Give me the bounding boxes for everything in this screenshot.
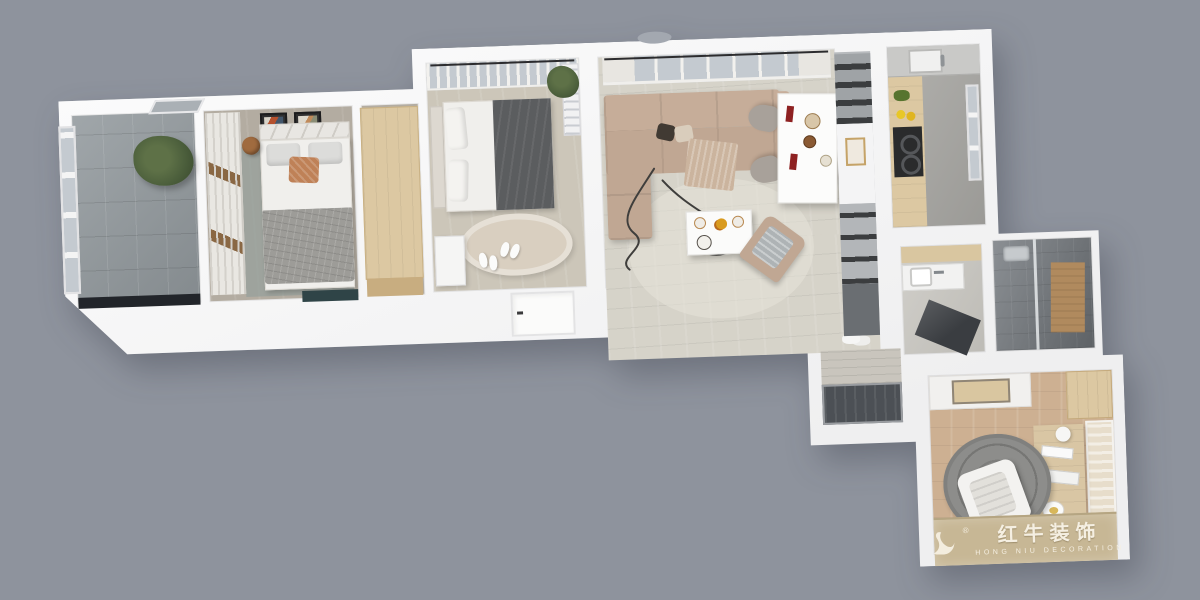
- entry-step: [821, 348, 902, 385]
- pillow: [444, 107, 468, 151]
- watermark-banner: ® 红牛装饰 HONG NIU DECORATION: [933, 512, 1118, 566]
- small-framed-picture: [845, 137, 866, 166]
- vanity-overhead-cabinet: [901, 244, 982, 263]
- lower-cabinet: [842, 283, 880, 336]
- kitchen-faucet: [940, 55, 944, 67]
- dark-blanket: [493, 98, 555, 210]
- sideboard-cabinet: [839, 203, 878, 284]
- gas-stove: [893, 126, 924, 177]
- brand-name-chinese: 红牛装饰: [997, 522, 1102, 546]
- shower-fixture: [1003, 246, 1030, 262]
- watermark-text: 红牛装饰 HONG NIU DECORATION: [974, 522, 1125, 557]
- entry-door: [822, 382, 903, 425]
- wash-basin: [910, 267, 933, 287]
- plan-shadow: ® 红牛装饰 HONG NIU DECORATION: [0, 0, 1200, 600]
- registered-trademark: ®: [963, 526, 969, 535]
- accent-pillow: [288, 156, 319, 183]
- slipper: [489, 255, 498, 271]
- white-dresser: [434, 235, 466, 286]
- louvered-wardrobe: [205, 112, 246, 295]
- shower-wood-panel: [1051, 262, 1085, 332]
- vegetables: [894, 90, 910, 102]
- study-ceiling-panel: [952, 378, 1011, 404]
- throw-pillow: [655, 123, 676, 142]
- built-in-wardrobe: [360, 106, 424, 280]
- study-wardrobe: [1065, 370, 1113, 420]
- balcony-roof-window: [148, 98, 205, 114]
- pillow: [448, 159, 469, 201]
- refrigerator: [834, 53, 872, 124]
- render-canvas: ® 红牛装饰 HONG NIU DECORATION: [0, 0, 1200, 600]
- floor-plan: ® 红牛装饰 HONG NIU DECORATION: [42, 24, 1161, 600]
- plaid-blanket: [262, 207, 355, 284]
- door-handle: [517, 311, 523, 314]
- bed-end-bench: [302, 289, 358, 302]
- hongniu-bull-logo-icon: [927, 527, 958, 558]
- kitchen-sink: [908, 49, 943, 74]
- basin-faucet: [934, 271, 944, 274]
